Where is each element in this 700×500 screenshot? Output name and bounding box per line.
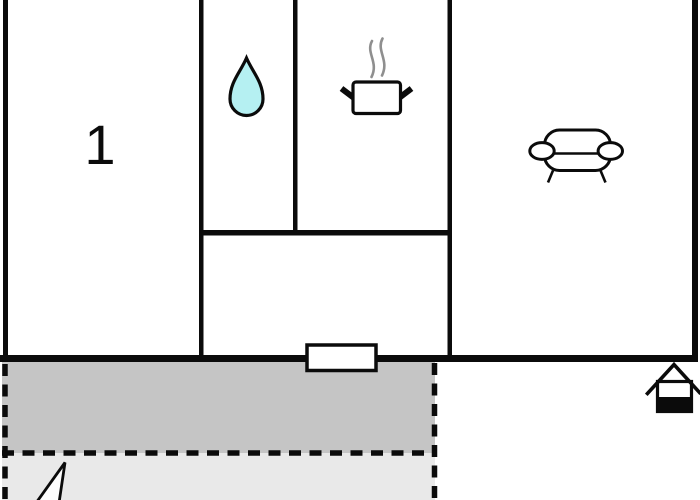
wall-hallway-top — [199, 230, 452, 236]
house-icon — [648, 365, 700, 412]
room-areas — [8, 0, 692, 355]
wall-livingroom-divider — [448, 0, 453, 358]
wall-room1-divider — [199, 0, 204, 358]
wall-bathroom-kitchen-divider — [293, 0, 298, 233]
room-1-area — [8, 0, 199, 355]
room-1-label: 1 — [70, 116, 130, 174]
hallway-area — [203, 236, 448, 355]
pot-body — [353, 82, 401, 114]
living-room-area — [452, 0, 692, 355]
floor-plan: 1 — [0, 0, 700, 500]
cooking-pot-icon — [342, 82, 412, 114]
wall-left — [3, 0, 8, 362]
wall-right — [692, 0, 698, 362]
sofa-armrest-left — [530, 143, 554, 160]
floor-plan-canvas — [0, 0, 700, 500]
door-icon — [307, 345, 376, 371]
terrace-area — [2, 361, 435, 453]
lawn-area — [2, 453, 435, 500]
sofa-armrest-right — [598, 143, 622, 160]
house-base — [658, 397, 692, 412]
